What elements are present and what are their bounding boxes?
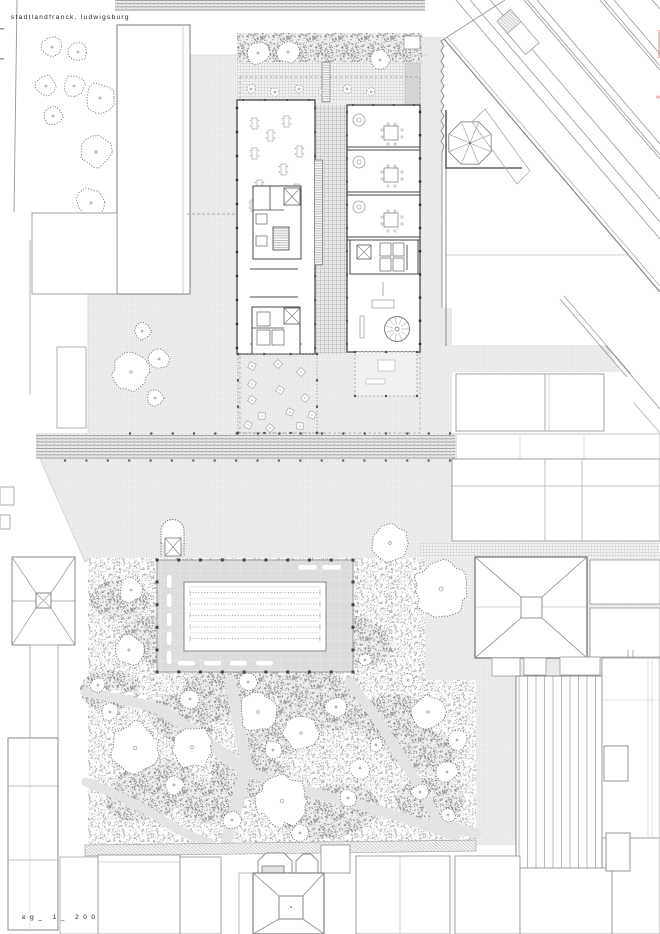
svg-text:eg_ 1_ 200: eg_ 1_ 200 <box>22 914 100 921</box>
svg-text:stadtlandfranck, ludwigsburg: stadtlandfranck, ludwigsburg <box>11 14 130 21</box>
